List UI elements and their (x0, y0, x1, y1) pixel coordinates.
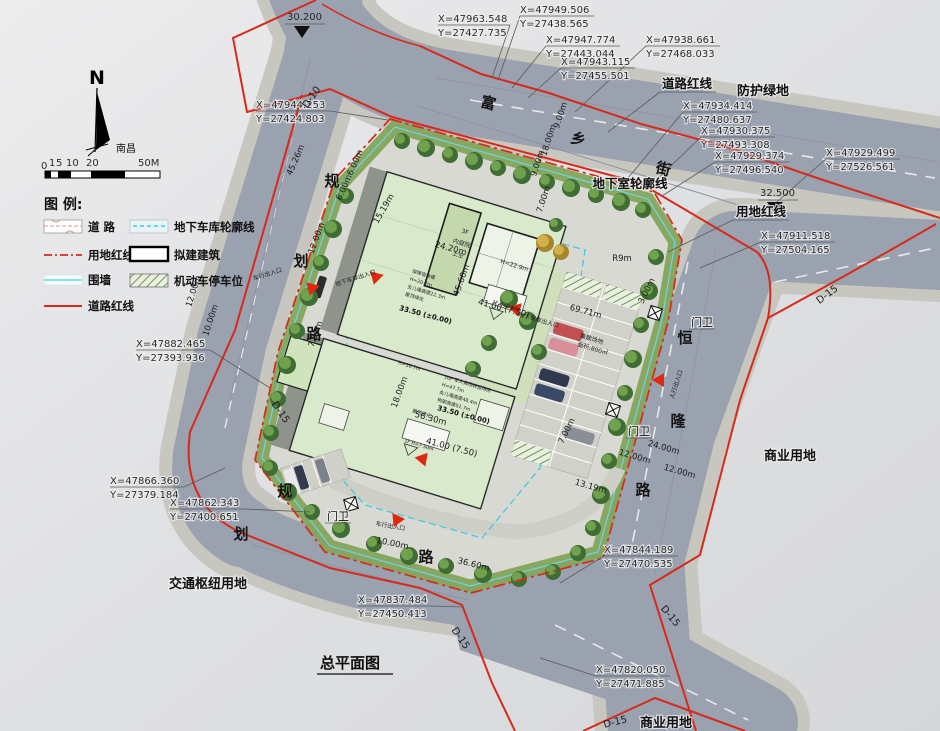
street-char: 规 (324, 172, 339, 190)
legend-label: 道 路 (88, 220, 116, 234)
street-char: 路 (635, 481, 651, 499)
callout-x: X=47911.518 (761, 231, 830, 242)
callout-x: X=47882.465 (136, 339, 205, 350)
legend-symbol-fence (44, 275, 82, 285)
callout-y: Y=27427.735 (437, 28, 507, 39)
guard-label: 门卫 (327, 509, 349, 523)
callout-x: X=47820.050 (596, 665, 665, 676)
site-plan-page: X=47963.548Y=27427.735 X=47949.506Y=2743… (0, 0, 940, 731)
scale-tick: 50M (138, 158, 159, 169)
callout-x: X=47934.414 (683, 101, 752, 112)
scale-tick: 10 (66, 158, 79, 169)
callout-y: Y=27480.637 (682, 115, 752, 126)
callout-x: X=47844.189 (604, 545, 673, 556)
commercial-land-label-2: 商业用地 (640, 715, 692, 731)
legend-label: 机动车停车位 (174, 274, 243, 288)
callout-x: X=47866.360 (110, 476, 179, 487)
callout-y: Y=27400.651 (169, 512, 239, 523)
legend-label: 地下车库轮廓线 (174, 220, 255, 234)
legend-symbol-garage (130, 220, 168, 233)
callout-y: Y=27471.885 (595, 679, 665, 690)
protective-green-label: 防护绿地 (737, 83, 789, 99)
legend-label: 围墙 (88, 273, 111, 287)
callout-x: X=47837.484 (358, 595, 427, 606)
callout-y: Y=27504.165 (760, 245, 830, 256)
street-char: 划 (233, 525, 248, 543)
transport-hub-label: 交通枢纽用地 (169, 576, 247, 592)
legend-symbol-building (130, 247, 168, 261)
street-char: 路 (418, 548, 434, 566)
legend-symbol-parking (130, 274, 168, 287)
commercial-land-label: 商业用地 (764, 448, 816, 464)
scale-tick: 5 (56, 158, 62, 169)
legend-label: 道路红线 (88, 299, 134, 313)
street-char: 规 (277, 482, 292, 500)
north-letter: N (89, 67, 105, 89)
road-redline-label: 道路红线 (662, 76, 713, 91)
compass-city-label: 南昌 (116, 142, 136, 155)
guard-label: 门卫 (691, 315, 713, 329)
guard-label: 门卫 (628, 424, 650, 438)
callout-x: X=47862.343 (170, 498, 239, 509)
callout-x: X=47963.548 (438, 14, 507, 25)
dim: R9m (612, 254, 632, 264)
callout-y: Y=27450.413 (357, 609, 427, 620)
street-char: 划 (293, 252, 308, 270)
callout-y: Y=27455.501 (560, 71, 630, 82)
callout-x: X=47929.499 (826, 148, 895, 159)
callout-y: Y=27424.803 (255, 114, 325, 125)
callout-x: X=47930.375 (701, 126, 770, 137)
street-char: 隆 (670, 412, 686, 430)
callout-y: Y=27379.184 (109, 490, 179, 501)
scale-tick: 1 (49, 158, 55, 169)
elevation-value: 32.500 (760, 188, 795, 199)
callout-y: Y=27468.033 (645, 49, 715, 60)
callout-y: Y=27496.540 (714, 165, 784, 176)
scale-tick: 0 (41, 161, 47, 172)
scale-tick: 20 (86, 158, 99, 169)
legend-title: 图 例: (44, 196, 82, 213)
callout-x: X=47929.374 (715, 151, 784, 162)
site-redline-label: 用地红线 (735, 204, 787, 219)
callout-x: X=47947.774 (546, 35, 615, 46)
callout-y: Y=27526.561 (825, 162, 895, 173)
callout-x: X=47943.115 (561, 57, 630, 68)
callout-x: X=47949.506 (520, 5, 589, 16)
callout-y: Y=27470.535 (603, 559, 673, 570)
legend-symbol-road (44, 220, 82, 233)
legend-label: 用地红线 (87, 248, 134, 262)
callout-x: X=47938.661 (646, 35, 715, 46)
street-char: 恒 (677, 329, 692, 347)
page-title: 总平面图 (320, 654, 380, 672)
elevation-value: 30.200 (287, 12, 322, 23)
callout-y: Y=27493.308 (700, 140, 770, 151)
site-plan-canvas: X=47963.548Y=27427.735 X=47949.506Y=2743… (0, 0, 940, 731)
callout-y: Y=27438.565 (519, 19, 589, 30)
callout-y: Y=27393.936 (135, 353, 205, 364)
basement-outline-label: 地下室轮廓线 (592, 176, 668, 191)
legend-label: 拟建建筑 (174, 248, 220, 262)
